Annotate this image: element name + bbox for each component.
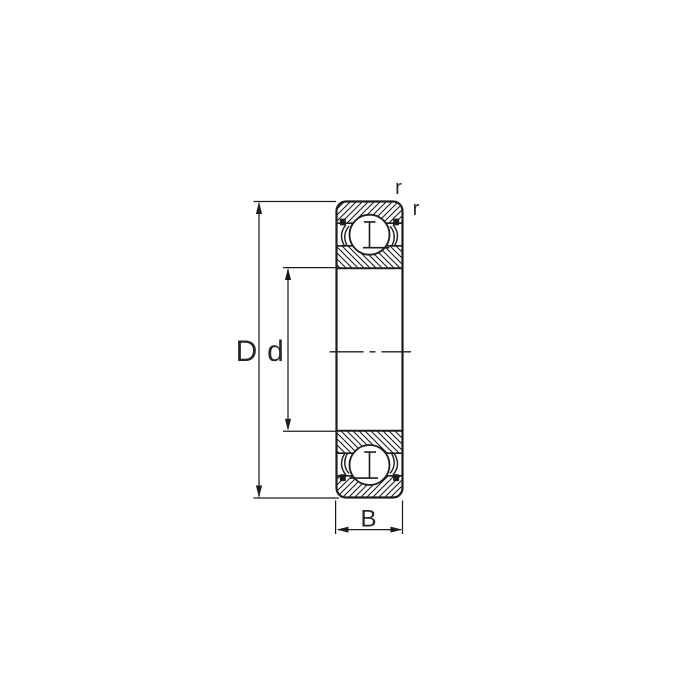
top-left-anchor	[340, 219, 346, 226]
arrow-up-d	[285, 268, 291, 280]
arrow-down-D	[256, 486, 262, 498]
corner-radius-label-side: r	[413, 198, 420, 220]
width-label: B	[360, 506, 376, 533]
outer-diameter-label: D	[236, 335, 258, 368]
bottom-left-anchor	[340, 474, 346, 481]
top-right-anchor	[393, 219, 399, 226]
bearing-drawing: D d B r r	[0, 0, 700, 700]
dimension-d	[283, 268, 337, 432]
drawing-canvas: D d B r r	[0, 0, 700, 700]
arrow-up-D	[256, 202, 262, 214]
arrow-down-d	[285, 419, 291, 431]
corner-radius-label-top: r	[395, 177, 402, 199]
arrow-right-B	[391, 527, 403, 533]
bottom-right-anchor	[393, 474, 399, 481]
arrow-left-B	[337, 527, 349, 533]
bore-diameter-label: d	[267, 335, 284, 368]
